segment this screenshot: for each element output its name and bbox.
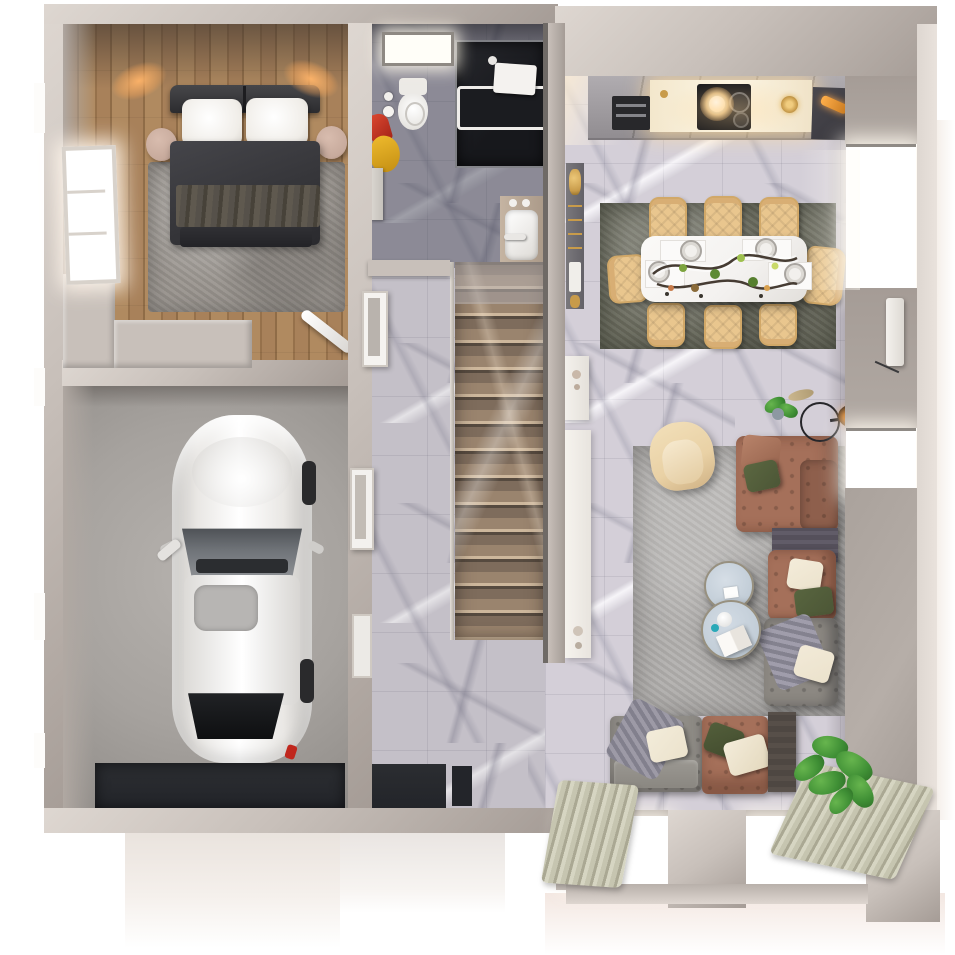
shelf-gold-decor-top	[569, 169, 581, 195]
potted-plant-large	[790, 728, 890, 814]
coffee-table-jug	[717, 612, 732, 627]
wall-exterior-left	[44, 4, 63, 833]
doormat-hall-small	[452, 766, 472, 806]
shelf-gold-line-3	[568, 233, 582, 235]
car-wheel-rear-right	[300, 659, 314, 703]
garage-side-door	[350, 468, 374, 550]
bedroom-window	[62, 145, 121, 285]
gold-dot-decor	[660, 90, 668, 98]
coffee-table-card	[723, 586, 738, 599]
sink-knob-1	[509, 199, 517, 207]
white-console-long	[565, 430, 591, 658]
front-door	[362, 291, 388, 367]
white-car	[168, 415, 316, 763]
garage-left-wallface	[62, 385, 94, 810]
bedroom-window-mullion-2	[69, 231, 107, 235]
console-vase-2	[574, 384, 580, 390]
gold-sunburst-decor	[781, 96, 798, 113]
sofa-pillow-olive-2	[793, 586, 834, 618]
bedroom-closet-platform-a	[63, 274, 115, 368]
small-plant-pot	[772, 408, 784, 420]
console-knob-2	[575, 642, 582, 649]
nightstand-right	[316, 126, 347, 159]
wall-right-mid-face	[845, 288, 917, 428]
garage-door-mat	[95, 763, 345, 809]
wall-left-sill-3	[34, 593, 45, 640]
car-hood-line	[192, 437, 292, 507]
pillow-right	[246, 98, 308, 146]
toilet	[398, 78, 428, 130]
stair-rail	[450, 262, 454, 640]
sink-faucet	[504, 234, 526, 240]
table-dot-1	[665, 292, 669, 296]
dining-table	[641, 236, 807, 302]
garage-side-door-panel	[355, 475, 366, 539]
oven	[612, 96, 650, 130]
shelf-gold-decor-bottom	[570, 295, 580, 308]
wall-exterior-bottom-left	[44, 808, 560, 833]
table-dot-3	[759, 294, 763, 298]
wall-bedroom-bathroom-divider	[348, 23, 372, 810]
sectional-back-cushions	[800, 460, 838, 530]
wall-exterior-right-edge	[917, 24, 937, 814]
window-right-1	[846, 144, 916, 294]
driveway	[125, 818, 340, 948]
wall-corridor-right	[543, 23, 565, 663]
coffee-table-open-book	[716, 625, 752, 657]
pillow-left	[182, 99, 242, 147]
shelf-gold-line-1	[568, 205, 582, 207]
console-vase-1	[572, 370, 581, 379]
wall-left-sill-2	[34, 368, 45, 406]
white-console-upper	[565, 356, 589, 420]
branch-centerpiece	[649, 244, 801, 296]
wall-kitchen-top	[555, 6, 937, 76]
oven-tray-2	[616, 114, 646, 117]
table-dot-2	[699, 294, 703, 298]
staircase-top-landing	[455, 262, 545, 304]
wall-left-sill-1	[34, 83, 45, 133]
dining-chair-bottom-3	[759, 304, 797, 346]
dining-chair-bottom-2	[704, 305, 742, 349]
bed-throw-blanket	[176, 185, 320, 227]
hall-wall-panel	[352, 614, 372, 678]
window-right-2	[846, 428, 916, 494]
floor-lamp-ring	[800, 402, 840, 442]
front-door-panel	[368, 298, 380, 356]
duvet-fold	[180, 227, 312, 247]
shelf-gold-line-4	[568, 247, 582, 249]
car-wheel-front-right	[302, 461, 316, 505]
bed	[170, 85, 320, 253]
shelf-gold-line-2	[568, 219, 582, 221]
toilet-paper-roll-1	[384, 92, 393, 101]
shower-caddy	[493, 63, 537, 96]
sink-vanity	[500, 196, 544, 264]
skylight-window	[382, 32, 454, 66]
wall-exterior-top	[44, 4, 558, 24]
wall-left-sill-4	[34, 733, 45, 768]
toilet-seat-ring	[405, 102, 425, 126]
car-dashboard	[196, 559, 288, 573]
wall-bathroom-bottom	[368, 260, 450, 276]
doormat-hall-large	[368, 764, 446, 808]
bedroom-closet-platform-b	[114, 320, 252, 368]
coffee-table-large	[701, 600, 761, 660]
cooktop-pan-2	[733, 112, 749, 128]
shelf-white-book	[569, 262, 581, 292]
dining-chair-bottom-1	[647, 303, 685, 347]
gold-accent-shelf	[566, 163, 584, 309]
car-sunroof	[194, 585, 258, 631]
wall-right-upper-face	[845, 76, 917, 144]
car-rear-window	[188, 687, 284, 739]
staircase	[455, 262, 545, 640]
garage-top-shadow	[62, 385, 348, 407]
armchair-cushion	[660, 437, 706, 486]
pendant-light-bulb	[709, 96, 725, 112]
bedroom-window-mullion-1	[67, 189, 105, 193]
coffee-table-teal-decor	[711, 624, 719, 632]
oven-tray-1	[616, 104, 646, 107]
radiator-panel	[886, 298, 904, 366]
shower-head	[488, 56, 497, 65]
sink-knob-2	[522, 199, 530, 207]
console-knob-1	[573, 626, 583, 636]
floor-plan-canvas	[0, 0, 955, 955]
